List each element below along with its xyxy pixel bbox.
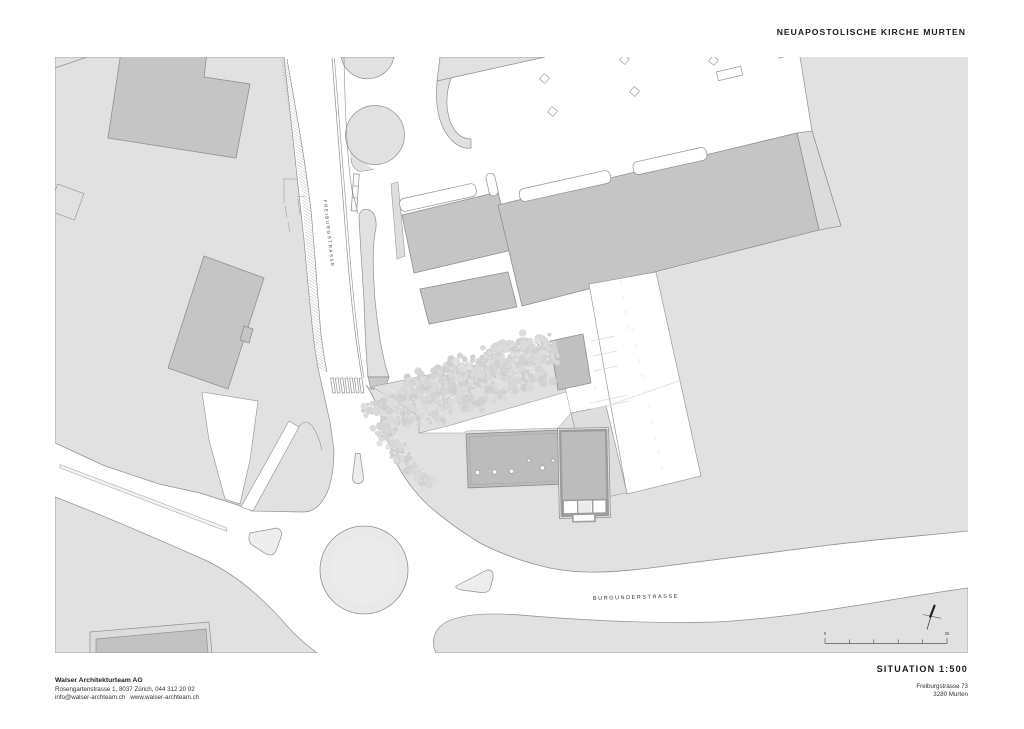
svg-text:info@walser-archteam.ch www.: info@walser-archteam.ch www.walser-archt… — [55, 694, 200, 701]
svg-text:25: 25 — [945, 631, 950, 636]
svg-text:SITUATION 1:500: SITUATION 1:500 — [877, 664, 968, 674]
svg-text:3280 Murten: 3280 Murten — [933, 691, 968, 698]
svg-text:Freiburgstrasse 73: Freiburgstrasse 73 — [916, 683, 968, 690]
svg-text:Rosengartenstrasse 1, 8037 Zür: Rosengartenstrasse 1, 8037 Zürich, 044 3… — [55, 686, 195, 693]
svg-text:NEUAPOSTOLISCHE KIRCHE MURTEN: NEUAPOSTOLISCHE KIRCHE MURTEN — [777, 27, 966, 37]
svg-text:Walser Architekturteam AG: Walser Architekturteam AG — [55, 677, 143, 684]
